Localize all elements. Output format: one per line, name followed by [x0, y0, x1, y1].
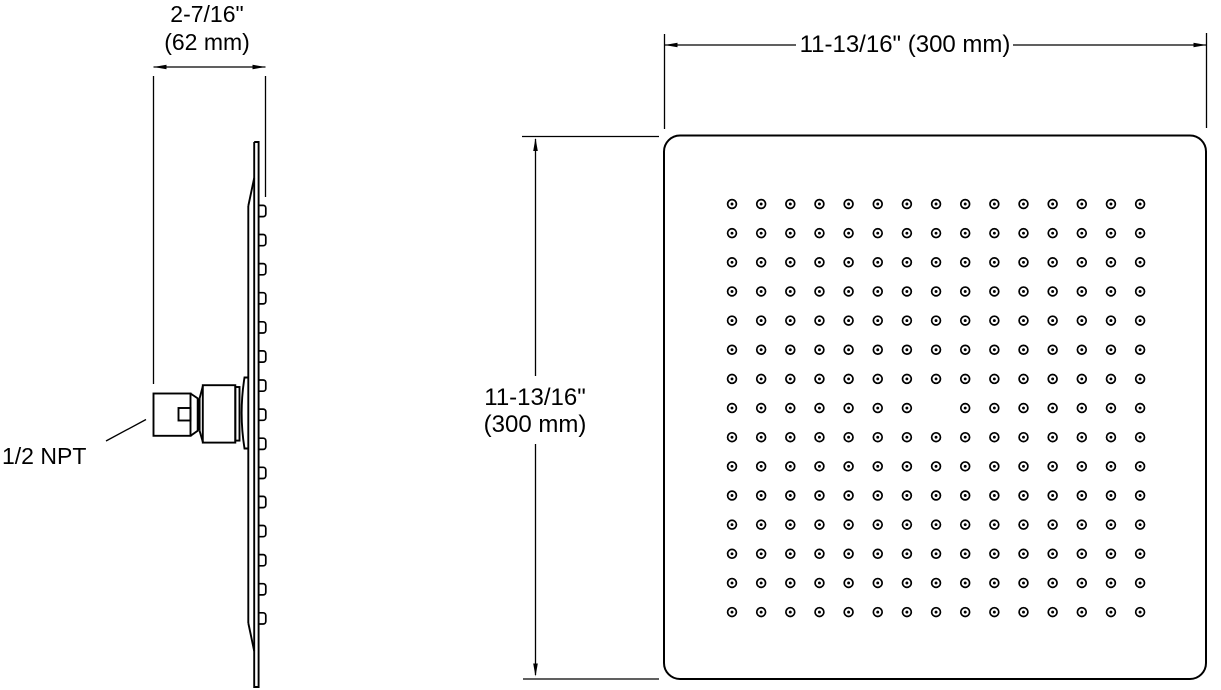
- nozzle-dot-icon: [760, 377, 763, 380]
- nozzle-dot-icon: [760, 203, 763, 206]
- nozzle-dot-icon: [905, 523, 908, 526]
- nozzle-dot-icon: [935, 377, 938, 380]
- nozzle-dot-icon: [935, 319, 938, 322]
- nozzle-dot-icon: [789, 465, 792, 468]
- nozzle-dot-icon: [789, 348, 792, 351]
- nozzle-dot-icon: [876, 582, 879, 585]
- nozzle-dot-icon: [760, 582, 763, 585]
- nozzle-dot-icon: [993, 261, 996, 264]
- nozzle-dot-icon: [876, 348, 879, 351]
- nozzle-dot-icon: [847, 523, 850, 526]
- nozzle-dot-icon: [1110, 232, 1113, 235]
- nozzle-dot-icon: [1051, 290, 1054, 293]
- nozzle-dot-icon: [964, 377, 967, 380]
- nozzle-dot-icon: [905, 348, 908, 351]
- nozzle-dot-icon: [847, 290, 850, 293]
- nozzle-dot-icon: [993, 582, 996, 585]
- nozzle-dot-icon: [731, 582, 734, 585]
- nozzle-dot-icon: [1022, 465, 1025, 468]
- nozzle-dot-icon: [731, 348, 734, 351]
- side-nozzle-icon: [259, 555, 266, 566]
- nozzle-dot-icon: [818, 377, 821, 380]
- side-view: [106, 65, 266, 687]
- nozzle-dot-icon: [789, 611, 792, 614]
- nozzle-dot-icon: [789, 261, 792, 264]
- nozzle-dot-icon: [1139, 523, 1142, 526]
- nozzle-dot-icon: [1139, 348, 1142, 351]
- nozzle-dot-icon: [1139, 232, 1142, 235]
- nozzle-dot-icon: [1110, 261, 1113, 264]
- side-nozzle-icon: [259, 264, 266, 275]
- nozzle-dot-icon: [935, 523, 938, 526]
- nozzle-dot-icon: [905, 582, 908, 585]
- nozzle-dot-icon: [1022, 407, 1025, 410]
- nozzle-dot-icon: [1051, 611, 1054, 614]
- nozzle-dot-icon: [731, 465, 734, 468]
- nozzle-dot-icon: [935, 552, 938, 555]
- nozzle-dot-icon: [789, 436, 792, 439]
- nozzle-dot-icon: [1110, 494, 1113, 497]
- nozzle-dot-icon: [964, 552, 967, 555]
- nozzle-dot-icon: [789, 319, 792, 322]
- nozzle-dot-icon: [964, 319, 967, 322]
- nozzle-dot-icon: [1080, 348, 1083, 351]
- nozzle-dot-icon: [876, 494, 879, 497]
- nozzle-dot-icon: [905, 436, 908, 439]
- nozzle-dot-icon: [1080, 582, 1083, 585]
- nozzle-dot-icon: [1051, 465, 1054, 468]
- nozzle-dot-icon: [993, 407, 996, 410]
- nozzle-dot-icon: [731, 232, 734, 235]
- nozzle-dot-icon: [935, 290, 938, 293]
- nozzle-dot-icon: [1080, 436, 1083, 439]
- nozzle-dot-icon: [847, 319, 850, 322]
- mounting-cup-arc: [242, 378, 249, 449]
- side-nozzle-icon: [259, 351, 266, 362]
- nozzle-dot-icon: [1051, 232, 1054, 235]
- nozzle-dot-icon: [905, 203, 908, 206]
- nozzle-dot-icon: [905, 290, 908, 293]
- nozzle-dot-icon: [876, 407, 879, 410]
- nozzle-dot-icon: [731, 611, 734, 614]
- side-view-dimension-lines: [106, 65, 266, 441]
- nozzle-dot-icon: [760, 523, 763, 526]
- nozzle-dot-icon: [1080, 494, 1083, 497]
- nozzle-dot-icon: [964, 436, 967, 439]
- side-width-dimension: 2-7/16" (62 mm): [127, 0, 287, 56]
- nozzle-dot-icon: [731, 523, 734, 526]
- nozzle-dot-icon: [1139, 407, 1142, 410]
- nozzle-dot-icon: [847, 582, 850, 585]
- front-view: [522, 33, 1207, 679]
- nozzle-dot-icon: [964, 611, 967, 614]
- nozzle-dot-icon: [993, 494, 996, 497]
- nozzle-dot-icon: [1080, 203, 1083, 206]
- nozzle-dot-icon: [847, 348, 850, 351]
- nozzle-dot-icon: [789, 203, 792, 206]
- nozzle-dot-icon: [760, 465, 763, 468]
- side-nozzle-icon: [259, 526, 266, 537]
- nozzle-dot-icon: [993, 523, 996, 526]
- nozzle-dot-icon: [1080, 523, 1083, 526]
- nozzle-dot-icon: [847, 552, 850, 555]
- nozzle-dot-icon: [789, 494, 792, 497]
- nozzle-dot-icon: [1080, 261, 1083, 264]
- nozzle-dot-icon: [993, 232, 996, 235]
- nozzle-dot-icon: [1051, 494, 1054, 497]
- nozzle-dot-icon: [905, 465, 908, 468]
- nozzle-dot-icon: [876, 319, 879, 322]
- nozzle-dot-icon: [905, 407, 908, 410]
- nozzle-dot-icon: [876, 436, 879, 439]
- plate-face-line: [254, 142, 258, 687]
- nozzle-dot-icon: [935, 494, 938, 497]
- nozzle-dot-icon: [1022, 377, 1025, 380]
- nozzle-dot-icon: [1110, 552, 1113, 555]
- nozzle-dot-icon: [760, 552, 763, 555]
- nozzle-dot-icon: [847, 407, 850, 410]
- side-nozzle-icon: [259, 613, 266, 624]
- nozzle-dot-icon: [1051, 436, 1054, 439]
- nozzle-dot-icon: [847, 232, 850, 235]
- nozzle-dot-icon: [760, 611, 763, 614]
- nozzle-dot-icon: [1080, 377, 1083, 380]
- nozzle-dot-icon: [905, 494, 908, 497]
- nozzle-dot-icon: [760, 348, 763, 351]
- nozzle-dot-icon: [1110, 465, 1113, 468]
- nozzle-dot-icon: [1080, 611, 1083, 614]
- nozzle-dot-icon: [964, 290, 967, 293]
- fitting-flange: [235, 387, 239, 441]
- nozzle-dot-icon: [1110, 436, 1113, 439]
- front-height-dimension: 11-13/16" (300 mm): [474, 384, 596, 438]
- nozzle-dot-icon: [964, 232, 967, 235]
- nozzle-dot-icon: [935, 611, 938, 614]
- nozzle-dot-icon: [964, 494, 967, 497]
- side-nozzle-icon: [259, 293, 266, 304]
- nozzle-dot-icon: [1139, 319, 1142, 322]
- nozzle-dot-icon: [789, 232, 792, 235]
- nozzle-dot-icon: [731, 494, 734, 497]
- nozzle-dot-icon: [1139, 582, 1142, 585]
- nozzle-dot-icon: [847, 611, 850, 614]
- nozzle-dot-icon: [818, 552, 821, 555]
- side-width-dimension-mm: (62 mm): [127, 28, 287, 56]
- nozzle-dot-icon: [731, 436, 734, 439]
- side-nozzle-icon: [259, 584, 266, 595]
- front-width-dimension: 11-13/16" (300 mm): [795, 31, 1015, 59]
- nozzle-dot-icon: [876, 552, 879, 555]
- drawing-canvas: [0, 0, 1221, 690]
- nozzle-dot-icon: [935, 465, 938, 468]
- nozzle-dot-icon: [964, 523, 967, 526]
- nozzle-dot-icon: [876, 232, 879, 235]
- side-nozzle-icon: [259, 409, 266, 420]
- nozzle-dot-icon: [818, 319, 821, 322]
- nozzle-dot-icon: [964, 407, 967, 410]
- nozzle-dot-icon: [731, 377, 734, 380]
- nozzle-dot-icon: [964, 348, 967, 351]
- nozzle-dot-icon: [847, 465, 850, 468]
- fitting-cylinder: [203, 385, 236, 442]
- nozzle-dot-icon: [1051, 377, 1054, 380]
- nozzle-dot-icon: [1051, 319, 1054, 322]
- nozzle-dot-icon: [760, 261, 763, 264]
- nozzle-dot-icon: [1080, 407, 1083, 410]
- side-nozzle-icon: [259, 235, 266, 246]
- nozzle-dot-icon: [818, 261, 821, 264]
- nozzle-dot-icon: [935, 582, 938, 585]
- nozzle-dot-icon: [818, 611, 821, 614]
- fitting-notch: [179, 408, 191, 421]
- nozzle-dot-icon: [1110, 523, 1113, 526]
- fitting-neck: [191, 386, 203, 442]
- nozzle-dot-icon: [789, 290, 792, 293]
- nozzle-dot-icon: [1110, 319, 1113, 322]
- nozzle-dot-icon: [731, 261, 734, 264]
- nozzle-dot-icon: [964, 261, 967, 264]
- nozzle-dot-icon: [1139, 436, 1142, 439]
- nozzle-dot-icon: [818, 523, 821, 526]
- nozzle-dot-icon: [760, 232, 763, 235]
- nozzle-dot-icon: [1110, 582, 1113, 585]
- nozzle-dot-icon: [731, 290, 734, 293]
- nozzle-dot-icon: [1051, 552, 1054, 555]
- nozzle-dot-icon: [1110, 290, 1113, 293]
- nozzle-dot-icon: [1022, 261, 1025, 264]
- nozzle-dot-icon: [1139, 377, 1142, 380]
- nozzle-dot-icon: [993, 290, 996, 293]
- arrowhead-right-icon: [1194, 43, 1207, 48]
- front-height-dimension-mm: (300 mm): [474, 411, 596, 438]
- side-nozzle-icon: [259, 467, 266, 478]
- nozzle-dot-icon: [1051, 348, 1054, 351]
- nozzle-dot-icon: [1139, 494, 1142, 497]
- side-nozzle-icon: [259, 322, 266, 333]
- nozzle-dot-icon: [993, 319, 996, 322]
- nozzle-dot-icon: [760, 494, 763, 497]
- side-nozzle-icon: [259, 380, 266, 391]
- nozzle-dot-icon: [1139, 261, 1142, 264]
- nozzle-dot-icon: [1080, 552, 1083, 555]
- nozzle-dot-icon: [993, 377, 996, 380]
- nozzle-dot-icon: [818, 465, 821, 468]
- arrowhead-up-icon: [533, 138, 538, 151]
- nozzle-dot-icon: [818, 348, 821, 351]
- nozzle-dot-icon: [1051, 261, 1054, 264]
- nozzle-dot-icon: [935, 203, 938, 206]
- nozzle-dot-icon: [1080, 232, 1083, 235]
- nozzle-dot-icon: [905, 261, 908, 264]
- nozzle-dot-icon: [731, 319, 734, 322]
- nozzle-dot-icon: [1022, 319, 1025, 322]
- nozzle-dot-icon: [847, 436, 850, 439]
- nozzle-dot-icon: [760, 290, 763, 293]
- nozzle-dot-icon: [1051, 523, 1054, 526]
- arrowhead-down-icon: [533, 664, 538, 677]
- nozzle-dot-icon: [1139, 290, 1142, 293]
- nozzle-dot-icon: [818, 494, 821, 497]
- nozzle-dot-icon: [1139, 611, 1142, 614]
- nozzle-dot-icon: [818, 203, 821, 206]
- leader-line: [106, 420, 146, 442]
- nozzle-dot-icon: [935, 348, 938, 351]
- nozzle-dot-icon: [818, 232, 821, 235]
- side-nozzle-icon: [259, 438, 266, 449]
- front-height-dimension-inches: 11-13/16": [474, 384, 596, 411]
- nozzle-dot-icon: [905, 611, 908, 614]
- nozzle-dot-icon: [935, 436, 938, 439]
- side-nozzle-tabs: [259, 205, 266, 624]
- nozzle-dot-icon: [818, 407, 821, 410]
- nozzle-dot-icon: [935, 232, 938, 235]
- nozzle-dot-icon: [1051, 582, 1054, 585]
- side-nozzle-icon: [259, 205, 266, 216]
- nozzle-dot-icon: [993, 348, 996, 351]
- nozzle-dot-icon: [993, 436, 996, 439]
- nozzle-dot-icon: [731, 552, 734, 555]
- nozzle-dot-icon: [964, 465, 967, 468]
- nozzle-dot-icon: [1022, 494, 1025, 497]
- technical-drawing: 2-7/16" (62 mm) 1/2 NPT 11-13/16" (300 m…: [0, 0, 1221, 690]
- nozzle-dot-icon: [905, 232, 908, 235]
- nozzle-dot-icon: [1022, 348, 1025, 351]
- nozzle-dot-icon: [789, 582, 792, 585]
- nozzle-dot-icon: [847, 377, 850, 380]
- nozzle-dot-icon: [789, 523, 792, 526]
- arrowhead-right-icon: [253, 65, 266, 70]
- nozzle-dot-icon: [789, 377, 792, 380]
- nozzle-dot-icon: [818, 582, 821, 585]
- nozzle-dot-icon: [818, 290, 821, 293]
- side-width-dimension-inches: 2-7/16": [127, 0, 287, 28]
- nozzle-dot-icon: [1022, 582, 1025, 585]
- nozzle-dot-icon: [993, 465, 996, 468]
- nozzle-dot-icon: [1110, 611, 1113, 614]
- nozzle-dot-icon: [876, 465, 879, 468]
- nozzle-dot-icon: [905, 319, 908, 322]
- nozzle-dot-icon: [789, 552, 792, 555]
- nozzle-dot-icon: [876, 523, 879, 526]
- nozzle-dot-icon: [993, 552, 996, 555]
- nozzle-dot-icon: [876, 203, 879, 206]
- nozzle-dot-icon: [1139, 465, 1142, 468]
- nozzle-dot-icon: [1022, 203, 1025, 206]
- nozzle-dot-icon: [1110, 407, 1113, 410]
- nozzle-dot-icon: [760, 407, 763, 410]
- nozzle-dot-icon: [876, 611, 879, 614]
- npt-fitting-block: [154, 394, 191, 436]
- nozzle-dot-icon: [731, 407, 734, 410]
- nozzle-dot-icon: [1080, 319, 1083, 322]
- side-nozzle-icon: [259, 496, 266, 507]
- nozzle-dot-icon: [789, 407, 792, 410]
- nozzle-dot-icon: [1110, 348, 1113, 351]
- nozzle-dot-icon: [847, 261, 850, 264]
- nozzle-dot-icon: [905, 377, 908, 380]
- nozzle-dot-icon: [847, 494, 850, 497]
- nozzle-dot-icon: [876, 377, 879, 380]
- nozzle-dot-icon: [876, 290, 879, 293]
- nozzle-dot-icon: [760, 436, 763, 439]
- arrowhead-left-icon: [154, 65, 167, 70]
- nozzle-dot-icon: [1022, 436, 1025, 439]
- nozzle-dot-icon: [1022, 290, 1025, 293]
- nozzle-dot-icon: [1080, 290, 1083, 293]
- nozzle-dot-icon: [1110, 377, 1113, 380]
- nozzle-dot-icon: [1110, 203, 1113, 206]
- nozzle-dot-icon: [818, 436, 821, 439]
- nozzle-dot-icon: [1051, 407, 1054, 410]
- nozzle-dot-icon: [905, 552, 908, 555]
- nozzle-dot-icon: [993, 203, 996, 206]
- nozzle-dot-icon: [1051, 203, 1054, 206]
- npt-label: 1/2 NPT: [2, 443, 86, 470]
- arrowhead-left-icon: [665, 43, 678, 48]
- nozzle-dot-icon: [876, 261, 879, 264]
- nozzle-dot-icon: [964, 203, 967, 206]
- nozzle-dot-icon: [993, 611, 996, 614]
- nozzle-dot-icon: [1022, 232, 1025, 235]
- nozzle-dot-icon: [760, 319, 763, 322]
- nozzle-dot-icon: [1080, 465, 1083, 468]
- nozzle-dot-icon: [847, 203, 850, 206]
- nozzle-dot-icon: [1139, 552, 1142, 555]
- nozzle-dot-icon: [1022, 552, 1025, 555]
- showerhead-face: [664, 136, 1206, 680]
- nozzle-dot-icon: [964, 582, 967, 585]
- nozzle-dot-icon: [1022, 611, 1025, 614]
- nozzle-dot-icon: [731, 203, 734, 206]
- nozzle-dot-icon: [1139, 203, 1142, 206]
- nozzle-dot-icon: [1022, 523, 1025, 526]
- nozzle-dot-icon: [935, 261, 938, 264]
